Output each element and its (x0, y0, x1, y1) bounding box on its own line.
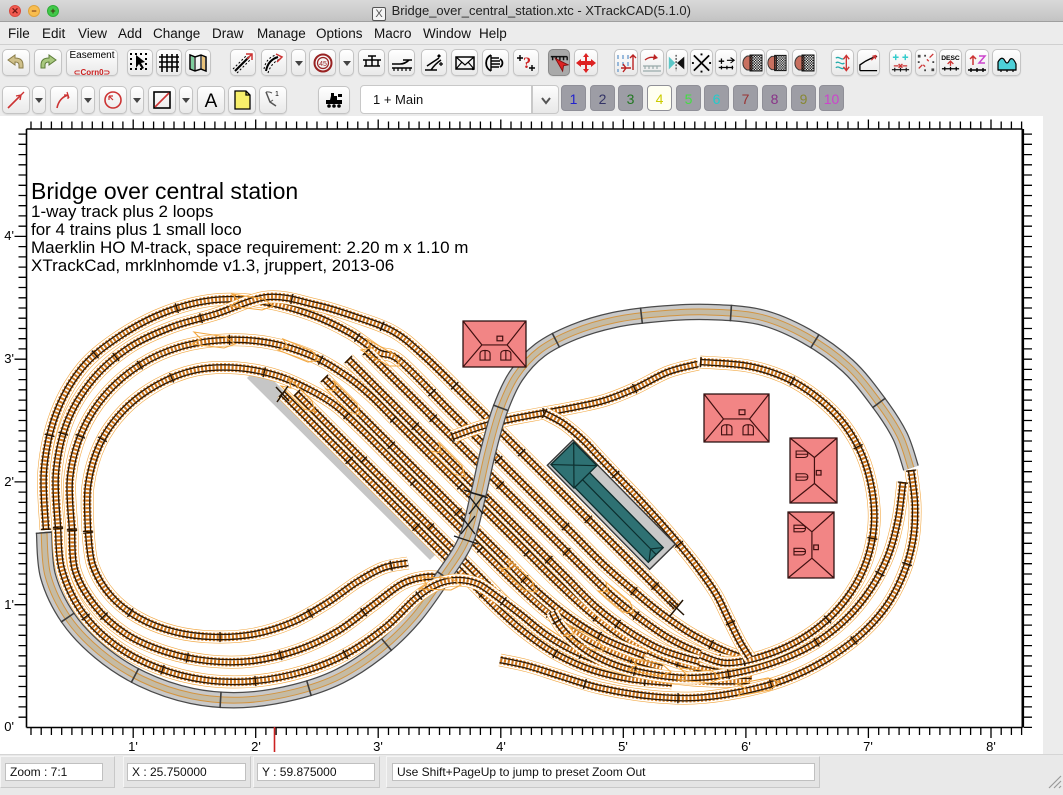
svg-text:1: 1 (275, 91, 279, 98)
svg-text:2': 2' (251, 739, 261, 754)
svg-text:3': 3' (373, 739, 383, 754)
svg-text:7': 7' (863, 739, 873, 754)
svg-text:8': 8' (986, 739, 996, 754)
svg-text:4': 4' (496, 739, 506, 754)
svg-text:1-way track plus 2 loops: 1-way track plus 2 loops (31, 202, 213, 221)
svg-text:2': 2' (4, 474, 14, 489)
svg-text:6': 6' (741, 739, 751, 754)
svg-text:XTrackCad, mrklnhomde v1.3, jr: XTrackCad, mrklnhomde v1.3, jruppert, 20… (31, 256, 394, 275)
svg-text:1': 1' (4, 597, 14, 612)
svg-text:for 4 trains plus 1 small loco: for 4 trains plus 1 small loco (31, 220, 242, 239)
svg-text:1': 1' (128, 739, 138, 754)
svg-text:Bridge over central station: Bridge over central station (31, 178, 298, 204)
svg-text:Maerklin HO M-track, space req: Maerklin HO M-track, space requirement: … (31, 238, 468, 257)
svg-text:4': 4' (4, 228, 14, 243)
svg-text:0': 0' (4, 719, 14, 734)
svg-text:A: A (205, 91, 218, 111)
svg-text:3': 3' (4, 351, 14, 366)
svg-text:45: 45 (319, 61, 327, 68)
svg-text:5': 5' (618, 739, 628, 754)
svg-text:?: ? (523, 55, 531, 72)
